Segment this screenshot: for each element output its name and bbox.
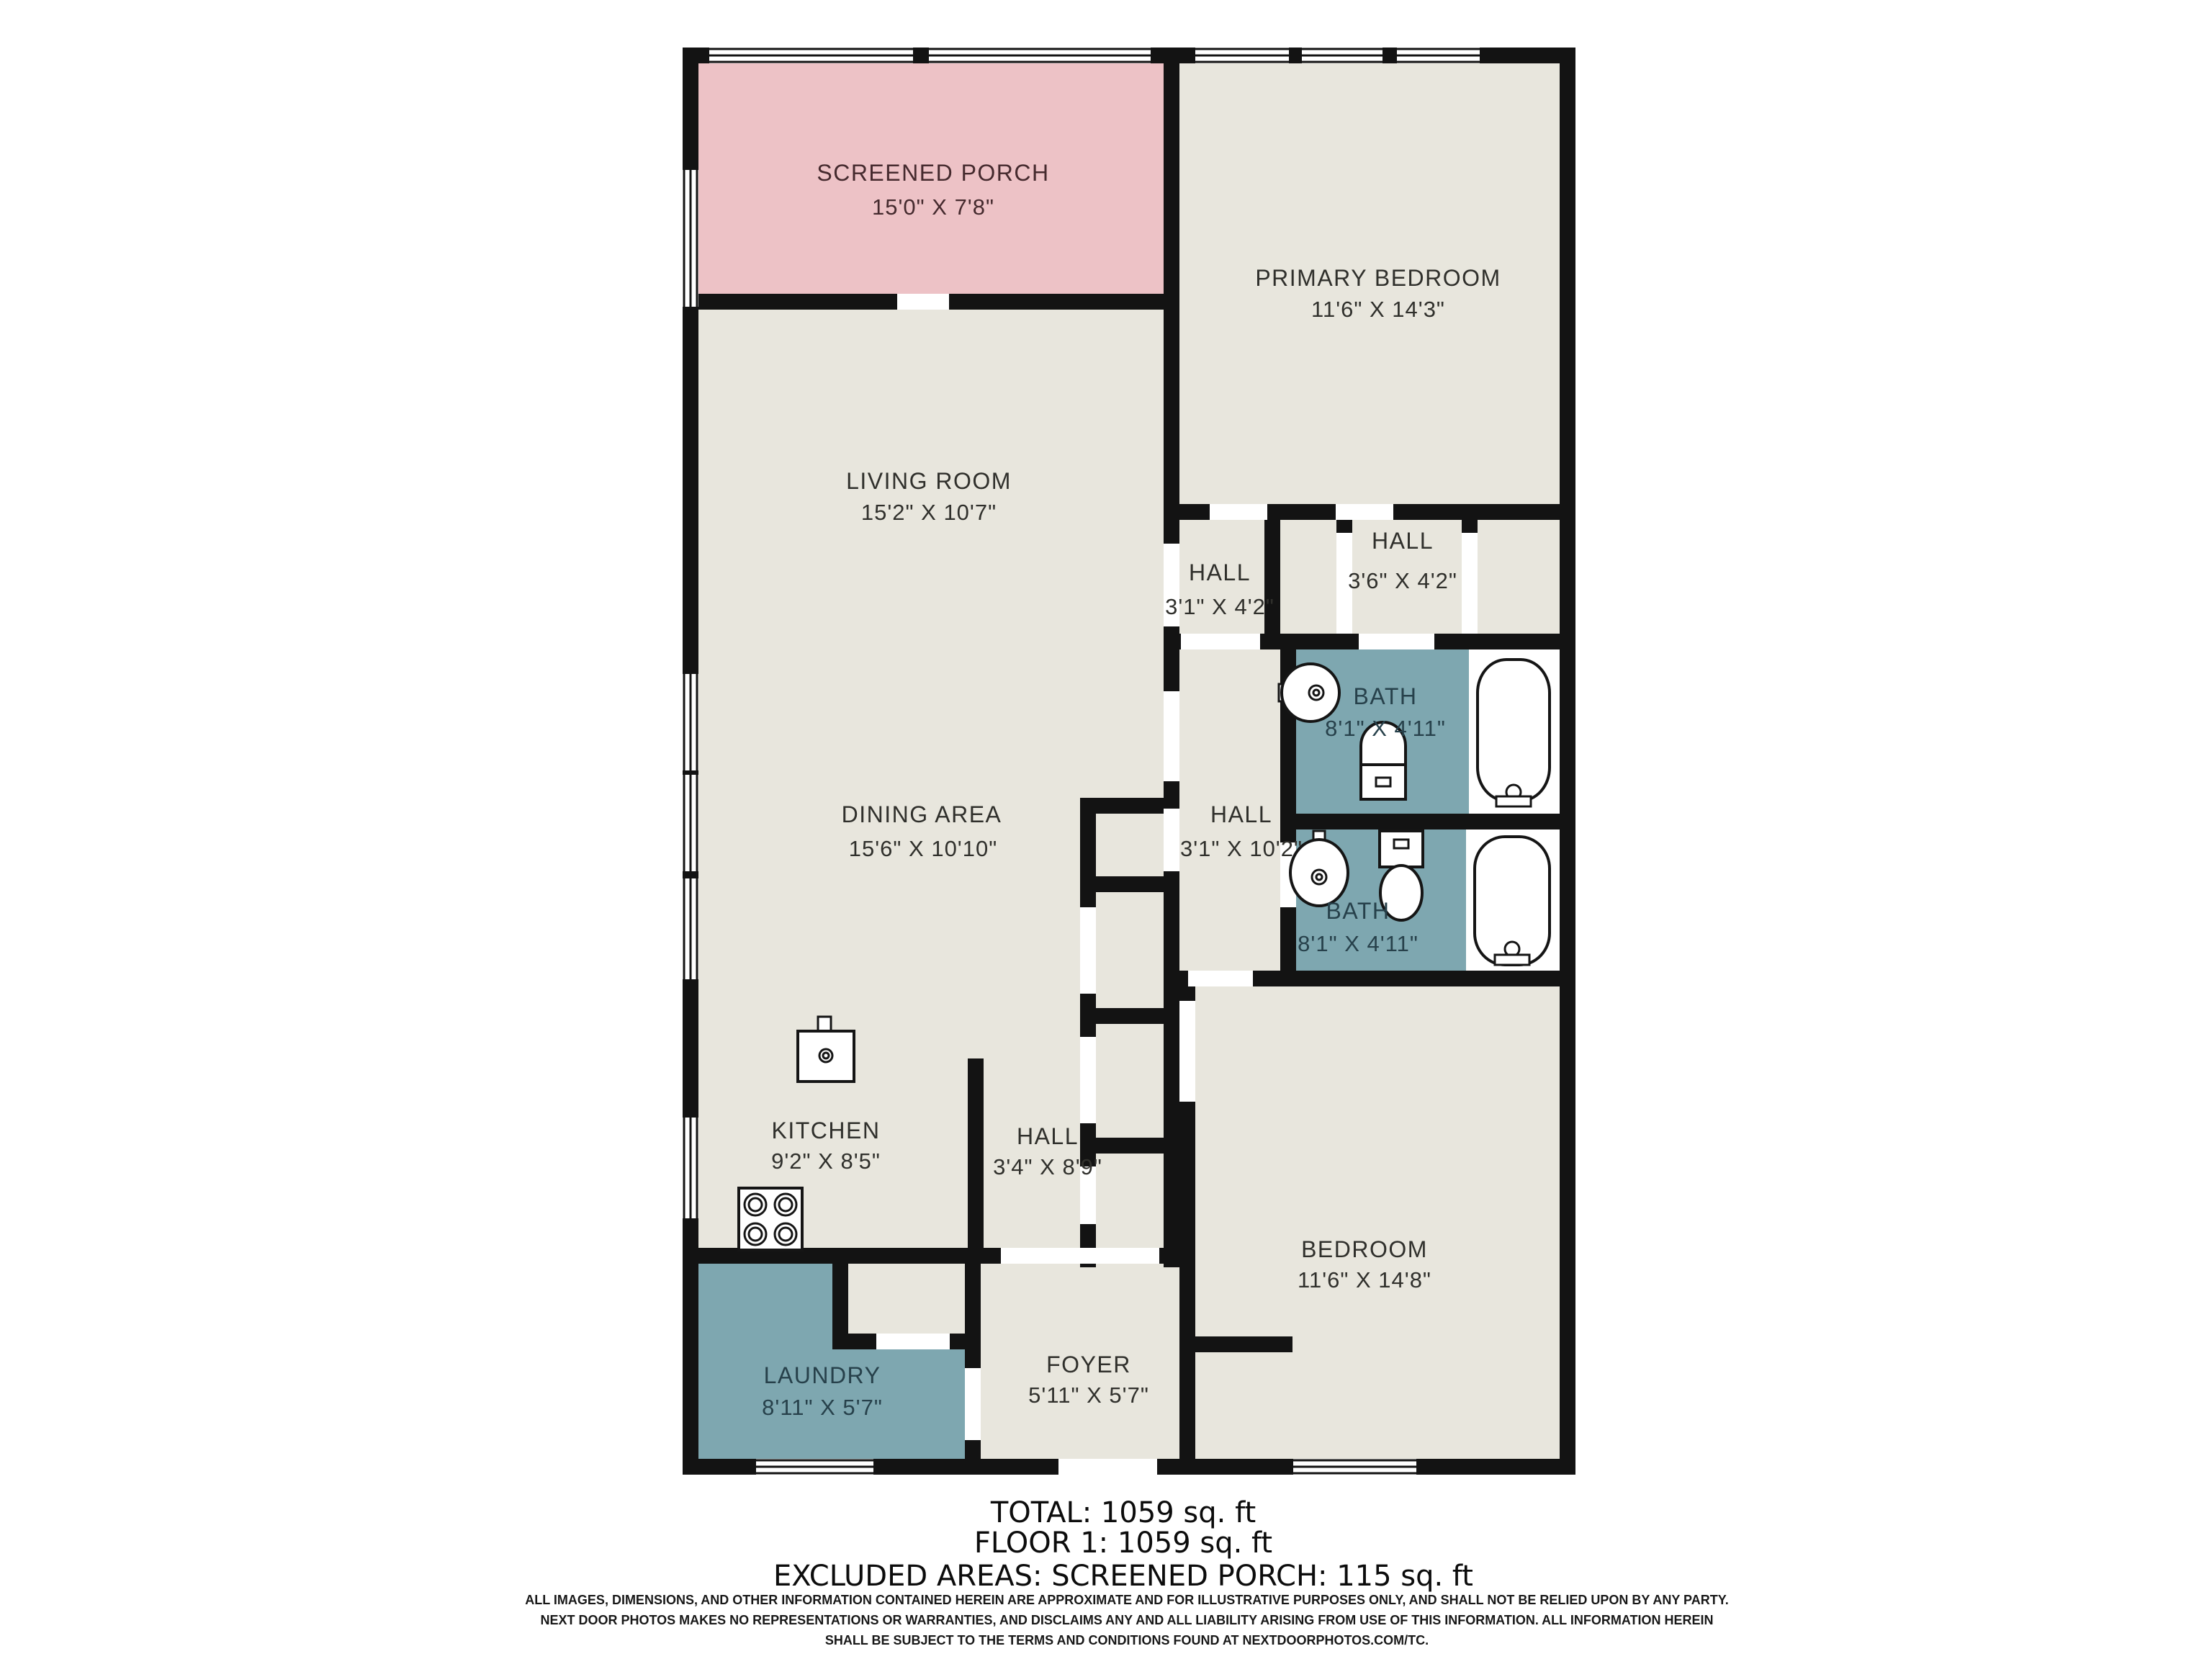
room-label-hall-upper-left: HALL [1189,559,1251,585]
wall [1195,1336,1292,1352]
room-dims-hall-middle: 3'1" X 10'2" [1180,836,1303,861]
room-dims-dining-area: 15'6" X 10'10" [849,836,997,861]
wall [1080,1008,1179,1024]
door-opening [1210,504,1267,520]
disclaimer-block: ALL IMAGES, DIMENSIONS, AND OTHER INFORM… [525,1593,1728,1647]
room-dims-bath-primary: 8'1" X 4'11" [1325,716,1446,741]
room-label-bath-second: BATH [1326,898,1390,924]
door-opening [965,1368,981,1440]
room-dims-hall-upper-left: 3'1" X 4'2" [1165,594,1274,619]
room-dims-primary-bedroom: 11'6" X 14'3" [1311,297,1445,322]
room-label-hall-lower: HALL [1017,1123,1079,1149]
wall [1560,48,1575,1475]
room-label-bedroom: BEDROOM [1301,1236,1428,1262]
total-area-text: TOTAL: 1059 sq. ft [990,1496,1256,1529]
floor-plan-page: SCREENED PORCH 15'0" X 7'8" PRIMARY BEDR… [0,0,2212,1659]
disclaimer-line-3: SHALL BE SUBJECT TO THE TERMS AND CONDIT… [825,1633,1429,1647]
room-label-dining-area: DINING AREA [842,801,1002,827]
door-opening [1164,691,1179,781]
room-label-primary-bedroom: PRIMARY BEDROOM [1255,265,1501,291]
disclaimer-line-2: NEXT DOOR PHOTOS MAKES NO REPRESENTATION… [540,1613,1713,1627]
door-opening [1164,809,1179,871]
door-opening [1359,634,1434,649]
door-opening [1181,634,1260,649]
bathtub-icon [1475,837,1550,965]
bathtub-icon [1478,660,1550,806]
room-dims-kitchen: 9'2" X 8'5" [771,1148,881,1174]
wall [1164,48,1179,1267]
excluded-area-text: EXCLUDED AREAS: SCREENED PORCH: 115 sq. … [773,1560,1473,1593]
room-label-kitchen: KITCHEN [772,1118,881,1143]
floor1-area-text: FLOOR 1: 1059 sq. ft [974,1527,1272,1560]
stove-icon [739,1188,802,1250]
door-opening [1080,907,1096,994]
wall [968,1058,984,1264]
room-dims-screened-porch: 15'0" X 7'8" [872,194,994,220]
door-opening [1188,971,1253,986]
laundry-closet [848,1264,965,1334]
room-dims-living-room: 15'2" X 10'7" [861,500,997,525]
room-dims-laundry: 8'11" X 5'7" [762,1395,883,1420]
floor-plan: SCREENED PORCH 15'0" X 7'8" PRIMARY BEDR… [0,0,2212,1659]
door-opening [1001,1248,1159,1264]
room-dims-bath-second: 8'1" X 4'11" [1298,931,1419,956]
summary-block: TOTAL: 1059 sq. ft FLOOR 1: 1059 sq. ft … [773,1496,1473,1593]
door-opening [1462,533,1478,634]
room-dims-hall-lower: 3'4" X 8'9" [993,1154,1102,1179]
wall [1080,1138,1179,1154]
door-opening [1080,1037,1096,1123]
room-dims-hall-upper-right: 3'6" X 4'2" [1348,568,1457,593]
door-opening [1058,1459,1157,1475]
room-label-hall-upper-right: HALL [1372,528,1434,554]
wall [1080,876,1179,892]
wall [1264,520,1280,649]
door-opening [897,294,949,310]
room-label-laundry: LAUNDRY [764,1362,881,1388]
wall [832,1264,848,1336]
door-opening [1179,1001,1195,1102]
room-dims-bedroom: 11'6" X 14'8" [1298,1267,1431,1292]
wall [1280,814,1575,829]
disclaimer-line-1: ALL IMAGES, DIMENSIONS, AND OTHER INFORM… [525,1593,1728,1607]
room-label-bath-primary: BATH [1354,683,1418,709]
door-opening [876,1334,950,1349]
room-label-screened-porch: SCREENED PORCH [817,160,1049,186]
room-label-foyer: FOYER [1046,1352,1131,1377]
room-label-hall-middle: HALL [1210,801,1272,827]
door-opening [1336,504,1393,520]
room-dims-foyer: 5'11" X 5'7" [1028,1382,1149,1408]
room-label-living-room: LIVING ROOM [846,468,1012,494]
wall [683,1248,984,1264]
